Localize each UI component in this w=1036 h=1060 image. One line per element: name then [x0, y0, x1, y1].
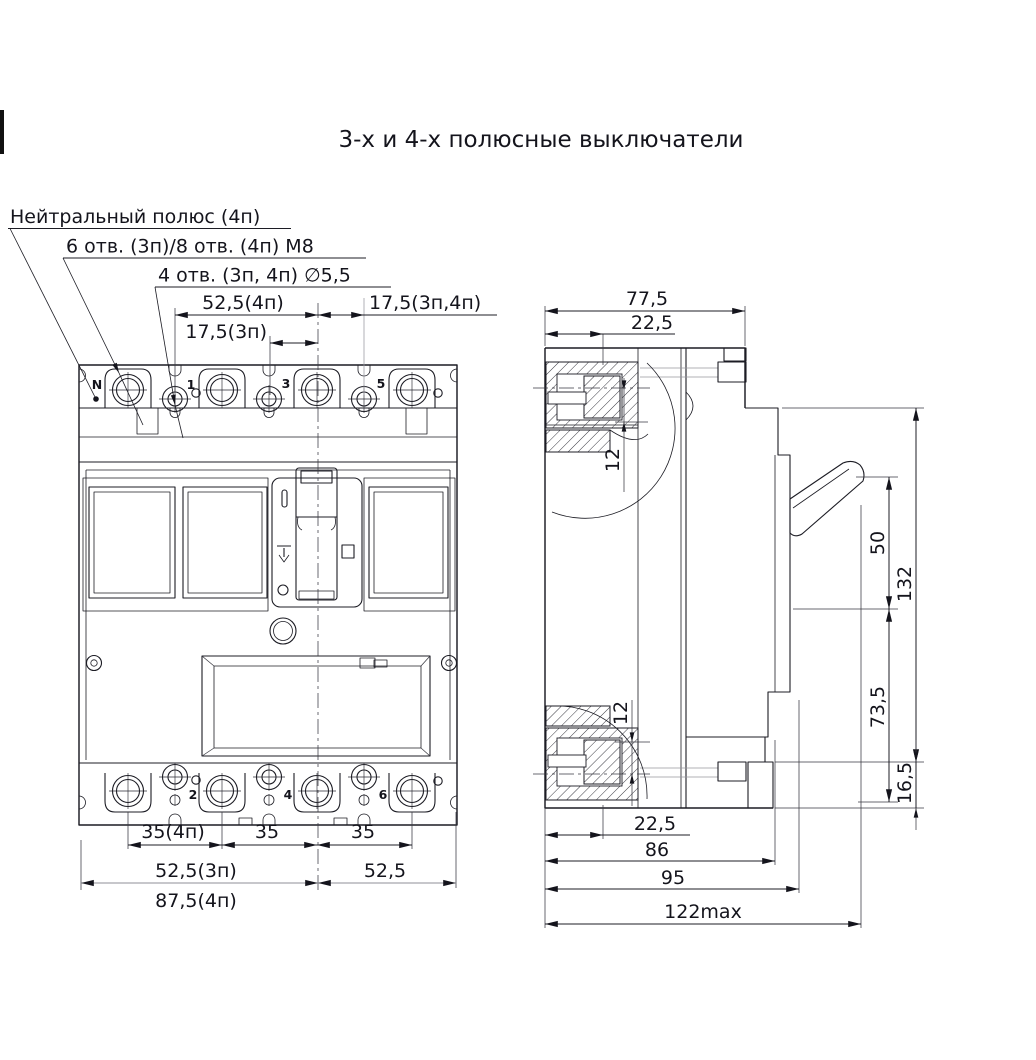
toggle-handle-area [272, 468, 362, 607]
mounting-foot [748, 762, 773, 808]
clamp-screw-4 [253, 763, 285, 791]
page-title: 3-х и 4-х полюсные выключатели [339, 127, 744, 153]
dim-86: 86 [645, 839, 669, 861]
terminal-lug-2 [199, 773, 245, 812]
clamp-screw-2 [159, 763, 191, 791]
toggle-lever [790, 461, 864, 535]
on-position-mark [282, 490, 287, 507]
dim-12-top: 12 [602, 448, 624, 472]
clamp-screw-3 [253, 385, 285, 413]
dim-22-5-top: 22,5 [631, 312, 673, 334]
callout-holes-m8: 6 отв. (3п)/8 отв. (4п) М8 [66, 236, 314, 258]
top-busbar [718, 362, 746, 382]
terminal-row-top [105, 365, 442, 418]
terminal-row-bottom [105, 763, 442, 825]
dim-52-5-4p: 52,5(4п) [202, 292, 284, 314]
side-view [533, 306, 924, 928]
terminal-section-bottom [533, 706, 650, 800]
terminal-lug-5 [389, 369, 435, 408]
dim-95: 95 [661, 867, 685, 889]
off-position-mark [278, 585, 288, 595]
callout-neutral-pole: Нейтральный полюс (4п) [10, 206, 260, 228]
terminal-label-3: 3 [282, 376, 291, 391]
dim-17-5-3p: 17,5(3п) [185, 321, 267, 343]
dim-52-5-right: 52,5 [364, 860, 406, 882]
cover-screw [442, 656, 457, 671]
terminal-section-top [533, 362, 675, 518]
callout-holes-d55: 4 отв. (3п, 4п) ∅5,5 [158, 265, 351, 287]
cover-screw [87, 656, 102, 671]
dim-16-5: 16,5 [894, 762, 916, 804]
front-face-windows [83, 478, 455, 611]
dim-17-5-3p4p: 17,5(3п,4п) [369, 292, 481, 314]
terminal-lug-2l [105, 773, 151, 812]
dim-35-right: 35 [351, 821, 375, 843]
dim-35-4p: 35(4п) [141, 821, 205, 843]
dim-132: 132 [894, 566, 916, 602]
plate-latch [360, 658, 375, 668]
dim-22-5-bottom: 22,5 [634, 813, 676, 835]
dim-12-bottom: 12 [610, 701, 632, 725]
clamp-screw-6 [348, 763, 380, 791]
dim-122max: 122max [664, 901, 742, 923]
bottom-busbar [718, 762, 746, 781]
handle-grip [301, 471, 332, 483]
dim-52-5-3p: 52,5(3п) [155, 860, 237, 882]
dim-77-5: 77,5 [626, 288, 668, 310]
lower-face [87, 618, 457, 756]
front-view [79, 303, 457, 892]
dim-73-5: 73,5 [867, 686, 889, 728]
dim-50: 50 [867, 531, 889, 555]
terminal-label-n: N [92, 377, 102, 392]
handle-slot [296, 468, 337, 600]
terminal-lug-3 [294, 369, 340, 408]
terminal-lug-1 [199, 369, 245, 408]
terminal-label-6: 6 [379, 787, 388, 802]
terminal-label-1: 1 [187, 377, 196, 392]
accessory-window [342, 545, 354, 558]
dim-35-mid: 35 [255, 821, 279, 843]
scan-artifact [0, 110, 4, 154]
terminal-lug-n [105, 369, 151, 408]
drawing-canvas: 3-х и 4-х полюсные выключатели Нейтральн… [0, 0, 1036, 1060]
terminal-label-5: 5 [377, 376, 386, 391]
terminal-label-4: 4 [284, 787, 293, 802]
label-plate [202, 656, 430, 756]
dim-87-5-4p: 87,5(4п) [155, 890, 237, 912]
terminal-lug-6 [389, 773, 435, 812]
technical-drawing-page: 3-х и 4-х полюсные выключатели Нейтральн… [0, 0, 1036, 1060]
terminal-lug-4 [294, 773, 340, 812]
terminal-label-2: 2 [189, 787, 198, 802]
